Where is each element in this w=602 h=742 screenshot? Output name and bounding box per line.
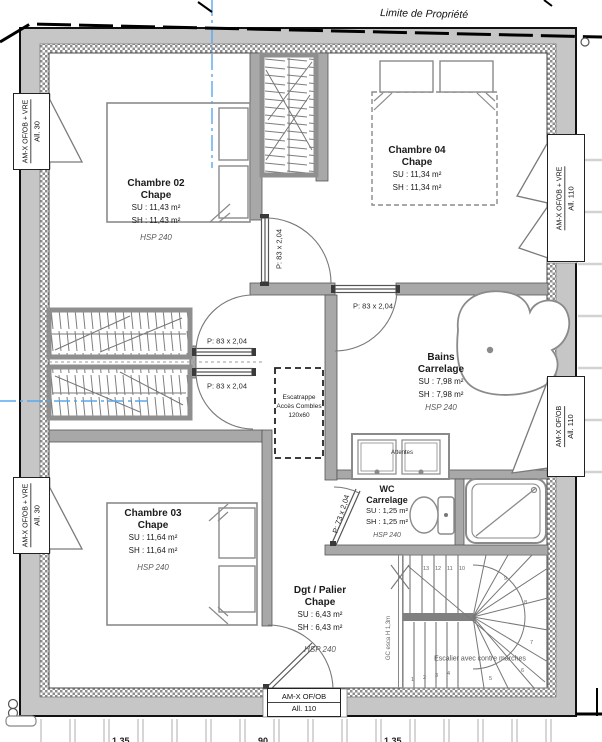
hsp-chambre02: HSP 240 bbox=[140, 233, 172, 242]
room-finish: Chape bbox=[124, 520, 181, 532]
tread-number: 9 bbox=[504, 576, 507, 582]
vanity-label: Attentes bbox=[391, 450, 413, 456]
door-label-closet-bottom: P: 83 x 2,04 bbox=[207, 382, 247, 391]
room-finish: Carrelage bbox=[366, 495, 408, 506]
window-left-bottom: AM-X OF/OB + VRE All. 30 bbox=[13, 477, 50, 554]
door-label-bains: P: 83 x 2,04 bbox=[353, 302, 393, 311]
window-sill-label: All. 110 bbox=[565, 406, 576, 447]
window-right-mid: AM-X OF/OB All. 110 bbox=[547, 376, 585, 477]
attic-hatch-label: Escatrappe Accès Combles 120x60 bbox=[276, 393, 321, 420]
window-type-label: AM-X OF/OB bbox=[557, 406, 564, 447]
room-finish: Chape bbox=[294, 597, 346, 609]
property-line-label: Limite de Propriété bbox=[380, 7, 468, 21]
attic-hatch-line1: Escatrappe bbox=[276, 393, 321, 402]
tread-number: 13 bbox=[423, 566, 429, 572]
room-label-chambre02: Chambre 02 Chape SU : 11,43 m² SH : 11,4… bbox=[127, 178, 184, 227]
room-label-chambre03: Chambre 03 Chape SU : 11,64 m² SH : 11,6… bbox=[124, 508, 181, 557]
hsp-palier: HSP 240 bbox=[304, 645, 336, 654]
window-right-top: AM-X OF/OB + VRE All. 110 bbox=[547, 134, 585, 262]
vanity-double-sink bbox=[352, 434, 449, 479]
room-su: SU : 11,64 m² bbox=[124, 532, 181, 545]
window-type-label: AM-X OF/OB bbox=[282, 692, 326, 701]
room-sh: SH : 11,34 m² bbox=[388, 182, 445, 195]
room-label-chambre04: Chambre 04 Chape SU : 11,34 m² SH : 11,3… bbox=[388, 145, 445, 194]
closet-left-bottom bbox=[49, 367, 190, 418]
tread-number: 8 bbox=[524, 600, 527, 606]
shower-tray bbox=[466, 479, 546, 543]
tread-number: 12 bbox=[435, 566, 441, 572]
tread-number: 10 bbox=[459, 566, 465, 572]
hsp-wc: HSP 240 bbox=[373, 532, 401, 539]
room-sh: SH : 6,43 m² bbox=[294, 622, 346, 635]
room-su: SU : 1,25 m² bbox=[366, 505, 408, 516]
downspout-bottom-left bbox=[9, 700, 18, 709]
room-finish: Chape bbox=[388, 157, 445, 169]
tread-number: 3 bbox=[435, 673, 438, 679]
room-name: Chambre 03 bbox=[124, 508, 181, 520]
window-bottom: AM-X OF/OB All. 110 bbox=[267, 688, 341, 717]
room-sh: SH : 1,25 m² bbox=[366, 516, 408, 527]
stairs-label: Escalier avec contre marches bbox=[434, 656, 526, 663]
window-left-top: AM-X OF/OB + VRE All. 30 bbox=[13, 93, 50, 170]
room-name: WC bbox=[366, 484, 408, 495]
room-su: SU : 11,43 m² bbox=[127, 202, 184, 215]
room-name: Chambre 02 bbox=[127, 178, 184, 190]
room-name: Dgt / Palier bbox=[294, 585, 346, 597]
room-su: SU : 6,43 m² bbox=[294, 609, 346, 622]
hsp-bains: HSP 240 bbox=[425, 403, 457, 412]
room-su: SU : 11,34 m² bbox=[388, 169, 445, 182]
room-su: SU : 7,98 m² bbox=[418, 376, 464, 389]
attic-hatch-line3: 120x60 bbox=[276, 411, 321, 420]
door-label-chambre04: P: 83 x 2,04 bbox=[275, 229, 284, 269]
room-sh: SH : 11,64 m² bbox=[124, 545, 181, 558]
tread-number: 5 bbox=[489, 676, 492, 682]
window-type-label: AM-X OF/OB + VRE bbox=[22, 100, 29, 164]
partial-dimension: 1.35 bbox=[112, 736, 130, 742]
tread-number: 6 bbox=[521, 668, 524, 674]
toilet bbox=[410, 497, 454, 534]
room-sh: SH : 11,43 m² bbox=[127, 215, 184, 228]
window-sill-label: All. 110 bbox=[565, 166, 576, 230]
room-finish: Carrelage bbox=[418, 364, 464, 376]
room-label-palier: Dgt / Palier Chape SU : 6,43 m² SH : 6,4… bbox=[294, 585, 346, 634]
door-label-closet-top: P: 83 x 2,04 bbox=[207, 337, 247, 346]
window-sill-label: All. 30 bbox=[30, 484, 41, 548]
partial-dimension: 1.35 bbox=[384, 736, 402, 742]
room-finish: Chape bbox=[127, 190, 184, 202]
room-name: Bains bbox=[418, 352, 464, 364]
window-type-label: AM-X OF/OB + VRE bbox=[557, 166, 564, 230]
room-sh: SH : 7,98 m² bbox=[418, 389, 464, 402]
tread-number: 1 bbox=[411, 677, 414, 683]
hsp-chambre03: HSP 240 bbox=[137, 563, 169, 572]
stairs-guardrail-label: GC esca H 1,3m bbox=[386, 616, 392, 660]
tread-number: 4 bbox=[447, 671, 450, 677]
window-sill-label: All. 110 bbox=[268, 702, 340, 713]
tread-number: 11 bbox=[447, 566, 453, 572]
downspout-top-right bbox=[581, 38, 589, 46]
attic-hatch-line2: Accès Combles bbox=[276, 402, 321, 411]
room-name: Chambre 04 bbox=[388, 145, 445, 157]
closet-top bbox=[262, 55, 316, 175]
tread-number: 2 bbox=[423, 675, 426, 681]
window-type-label: AM-X OF/OB + VRE bbox=[22, 484, 29, 548]
room-label-bains: Bains Carrelage SU : 7,98 m² SH : 7,98 m… bbox=[418, 352, 464, 401]
closet-left-top bbox=[49, 310, 190, 357]
tread-number: 7 bbox=[530, 640, 533, 646]
room-label-wc: WC Carrelage SU : 1,25 m² SH : 1,25 m² bbox=[366, 484, 408, 527]
partial-dimension: 90 bbox=[258, 736, 268, 742]
window-sill-label: All. 30 bbox=[30, 100, 41, 164]
floor-plan: Limite de Propriété Chambre 02 Chape SU … bbox=[0, 0, 602, 742]
